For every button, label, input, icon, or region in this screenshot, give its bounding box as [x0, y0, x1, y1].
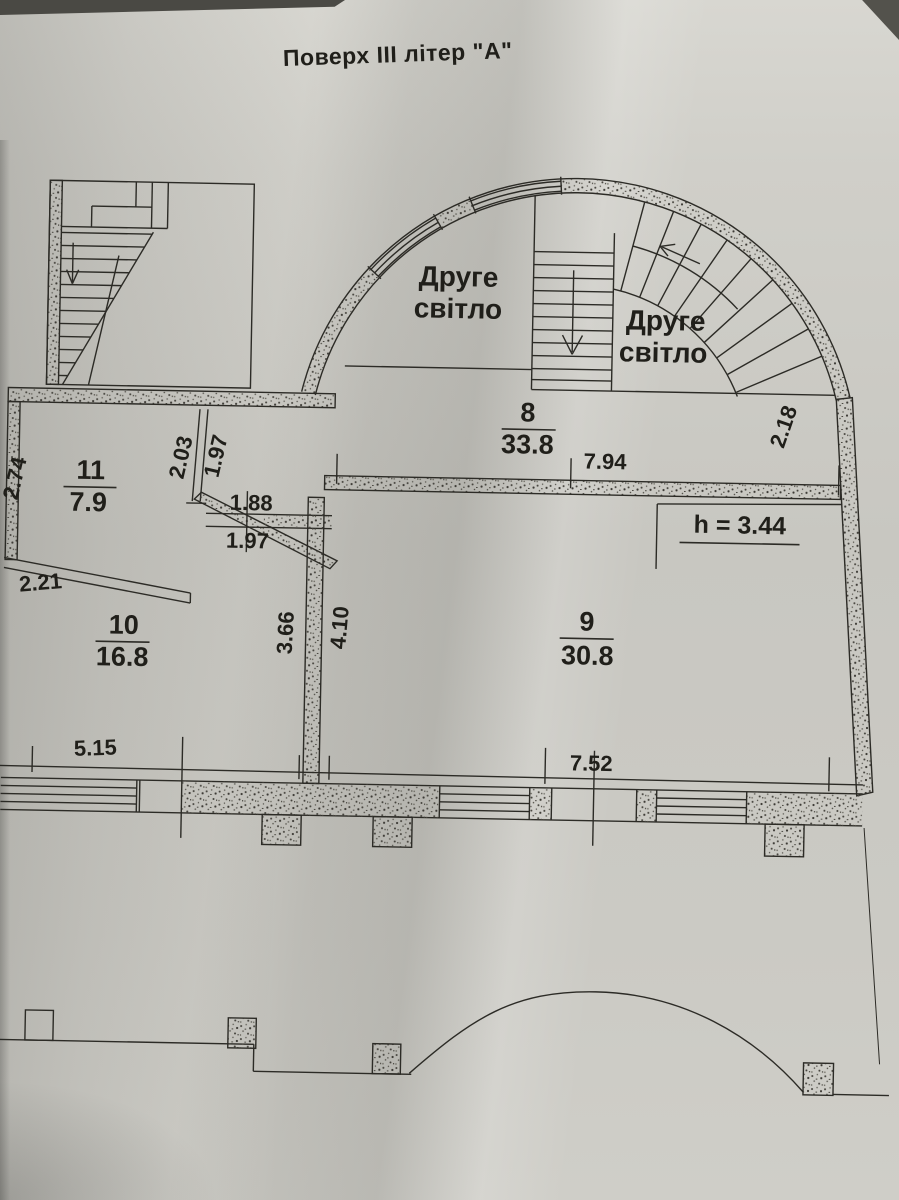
stairs-down-arrow-icon — [562, 270, 584, 354]
plan-labels: Друге світло Друге світло 8 33.8 9 30.8 … — [0, 252, 805, 779]
stairwell-top-left — [46, 180, 254, 388]
photo-corner-shadow — [0, 1080, 220, 1200]
stairs-up-arrow-icon — [660, 244, 700, 264]
arch-inner-edge — [315, 188, 840, 405]
room-11-area: 7.9 — [69, 487, 107, 518]
terrace-column — [803, 1063, 834, 1096]
dim-1-88: 1.88 — [230, 490, 273, 516]
room-divider-wall — [303, 497, 324, 783]
dim-2-18: 2.18 — [765, 402, 803, 451]
ceiling-height-note: h = 3.44 — [693, 511, 786, 541]
dim-5-15: 5.15 — [73, 735, 117, 761]
room-10-number: 10 — [109, 609, 140, 640]
terrace-arc — [409, 988, 805, 1092]
floor-plan-drawing: Поверх III літер "А" — [0, 0, 899, 1200]
pilaster — [373, 817, 413, 848]
pilaster — [262, 814, 302, 845]
room-8-number: 8 — [520, 397, 536, 427]
stairs-down-arrow-icon — [66, 243, 79, 284]
terrace-column — [372, 1044, 401, 1075]
second-light-right-label: Друге — [626, 304, 706, 337]
room9-top-wall — [324, 476, 840, 500]
dim-2-21: 2.21 — [18, 568, 63, 597]
terrace-outline — [0, 811, 894, 1096]
terrace-column — [25, 1010, 54, 1041]
dim-1-97-upper: 1.97 — [199, 432, 233, 479]
arch-outer-edge — [302, 173, 854, 402]
room-8-area: 33.8 — [501, 429, 554, 460]
right-outer-wall — [829, 397, 881, 796]
second-light-left-label: Друге — [419, 260, 499, 293]
dim-7-94: 7.94 — [583, 449, 627, 475]
pilaster — [765, 824, 805, 857]
dim-4-10: 4.10 — [325, 605, 354, 650]
room-11-number: 11 — [76, 455, 105, 486]
room-9-area: 30.8 — [561, 640, 614, 671]
terrace-column — [228, 1018, 257, 1049]
dim-1-97-lower: 1.97 — [226, 528, 269, 554]
room-9-number: 9 — [579, 606, 595, 636]
scanned-floor-plan-photo: Поверх III літер "А" — [0, 0, 899, 1200]
straight-staircase — [531, 196, 615, 392]
room-10-area: 16.8 — [96, 641, 149, 672]
bottom-dimension-line — [0, 765, 863, 785]
entry-arch-wall — [302, 172, 854, 405]
second-light-right-label: світло — [619, 336, 708, 369]
second-light-left-label: світло — [413, 292, 502, 325]
page-title: Поверх III літер "А" — [283, 37, 513, 71]
dim-7-52: 7.52 — [570, 750, 613, 776]
dim-2-03: 2.03 — [164, 434, 198, 481]
dim-3-66: 3.66 — [272, 611, 299, 655]
stairwell-wall — [46, 180, 62, 384]
bottom-facade-wall — [0, 733, 864, 858]
photo-edge-shadow — [0, 140, 10, 1200]
